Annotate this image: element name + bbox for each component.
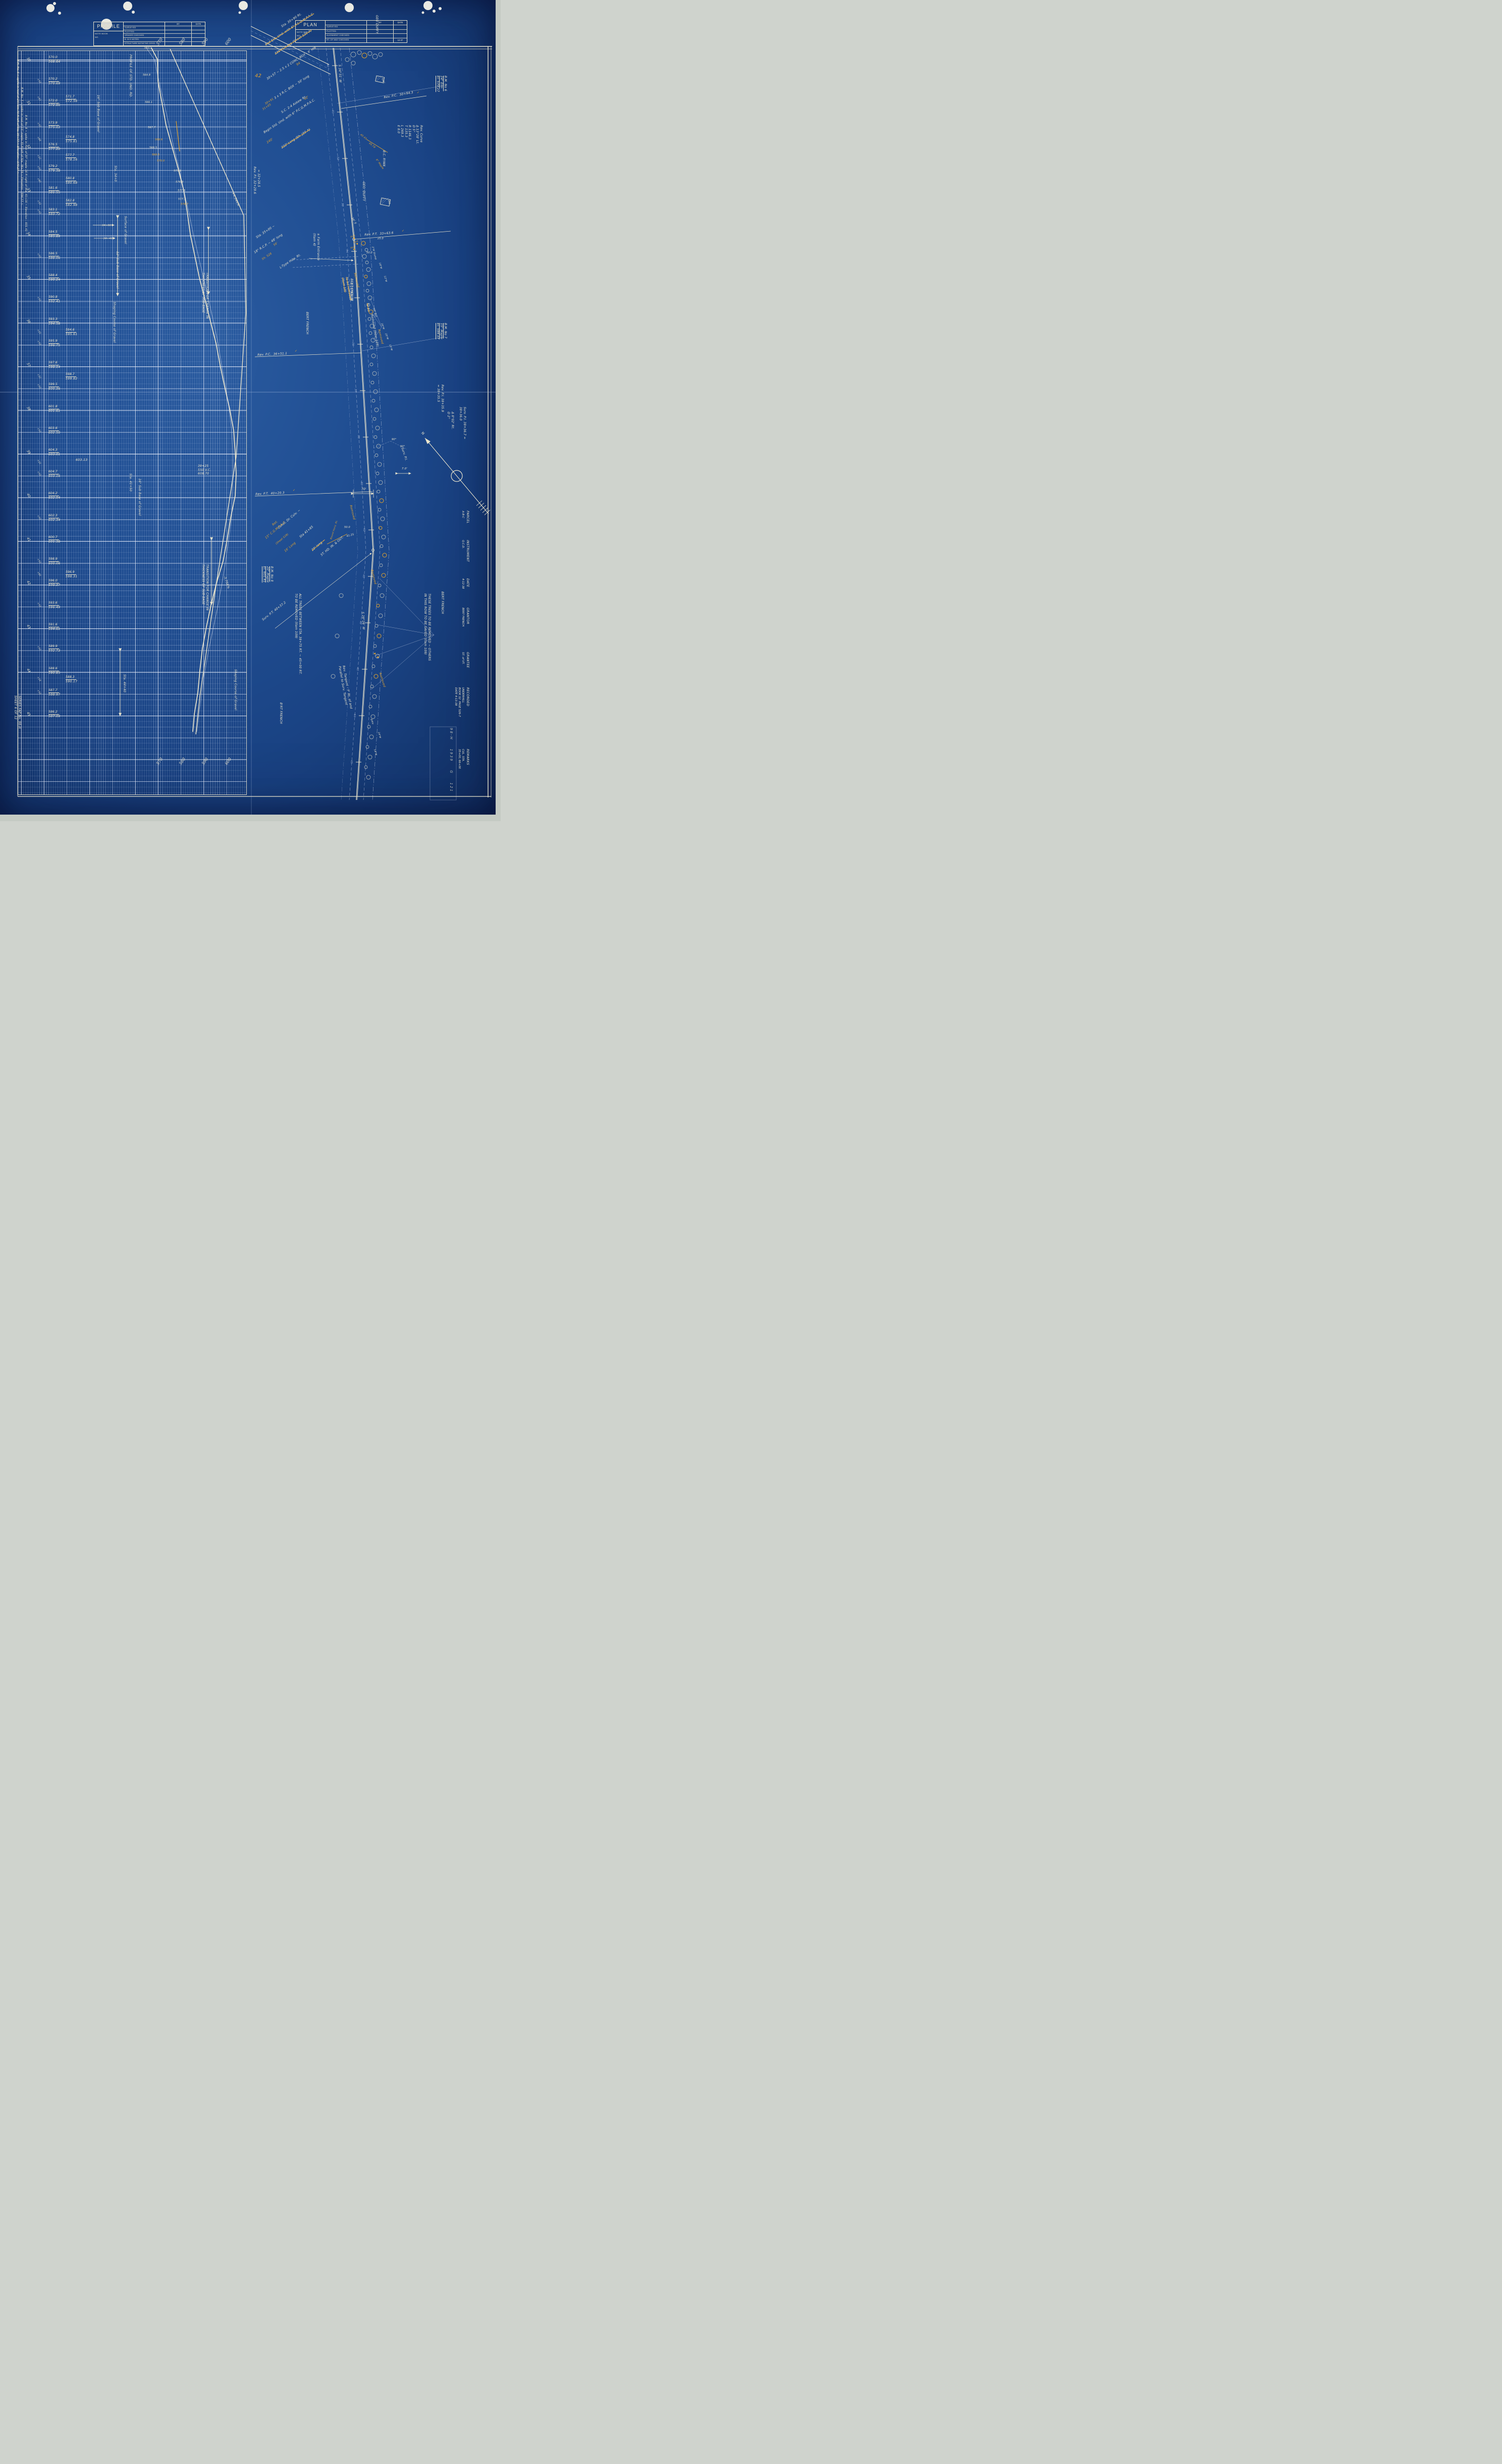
- elevation-pair: 589.9592.73: [48, 645, 60, 653]
- ground-elevation: 600.36: [48, 387, 60, 391]
- plan-station-label: 45: [350, 760, 353, 764]
- grade-elevation: 589.9: [48, 645, 59, 649]
- tree-icon: [364, 275, 367, 278]
- leader-surv-pt: [275, 553, 371, 628]
- annotation: Removed: [349, 505, 356, 520]
- ground-elevation: 598.37: [48, 583, 60, 587]
- tree-icon: [376, 654, 380, 658]
- plan-station-label: 31: [331, 110, 334, 114]
- ground-elevation: 568.64: [48, 60, 60, 64]
- punch-hole: [423, 1, 433, 10]
- tree-icon: [365, 261, 368, 264]
- annotation: 577.7: [178, 198, 186, 201]
- annotation: 7.0': [402, 467, 407, 471]
- parcel-column: GRANTEEST. of VT.: [454, 652, 469, 685]
- annotation: 222' Long (Sh. J30-A): [281, 128, 311, 149]
- annotation: ✓: [402, 229, 404, 233]
- by-cell: [366, 38, 393, 42]
- tree-icon: [367, 725, 370, 728]
- annotation: gate: [370, 719, 374, 725]
- tree-icon: [370, 363, 373, 366]
- tree-icon: [371, 715, 375, 719]
- grade-elevation: 571.7: [66, 95, 76, 99]
- annotation: Shaping Course of Gravel: [113, 302, 117, 343]
- tree-icon: [376, 472, 379, 475]
- by-cell: [165, 30, 191, 34]
- ground-elevation: 602.94: [48, 496, 60, 500]
- tree-icon: [380, 499, 384, 503]
- hub-marker: [377, 656, 379, 658]
- elevation-pair: 603.6602.50: [48, 426, 60, 435]
- tree-icon: [374, 408, 379, 412]
- grade-elevation: 602.3: [48, 514, 59, 518]
- grade-elevation: 598.7: [66, 372, 76, 377]
- tree-icon: [381, 517, 385, 521]
- tree-icon: [380, 594, 384, 598]
- grade-elevation: 577.7: [66, 153, 76, 158]
- annotation: Hub: [353, 240, 359, 245]
- elevation-pair: 579.2579.38: [48, 165, 60, 173]
- punch-hole: [46, 4, 55, 12]
- elevation-pair: 588.4590.24: [48, 274, 60, 282]
- annotation: Sh. 528: [261, 252, 273, 261]
- annotation: SERIES FAP No. 98-H SHEET 6 OF 12: [14, 695, 21, 729]
- titleblock-row: SURVEYED: [326, 25, 407, 30]
- date-cell: [393, 25, 407, 29]
- elevation-pair: 580.8580.68: [66, 177, 77, 185]
- annotation: 30+57 ~ 2.5 x 2 CONC. BOX · 6' HW: [266, 46, 317, 81]
- grade-elevation: 584.5: [48, 230, 59, 235]
- annotation: 18"M: [373, 749, 377, 756]
- tree-icon: [378, 462, 382, 466]
- by-cell: [165, 26, 191, 30]
- ground-elevation: 588.97: [48, 693, 60, 697]
- grade-elevation: 591.6: [48, 623, 59, 627]
- grade-elevation: 593.6: [48, 601, 59, 606]
- north-arrow-head: [425, 438, 431, 444]
- grade-elevation: 600.7: [48, 535, 59, 540]
- annotation: 16" Sub Base of Gravel: [138, 478, 142, 516]
- annotation: B.M. No 8 20" Maple El. 601.41: [262, 566, 274, 582]
- annotation: BERT FRENCH: [305, 312, 309, 334]
- grade-elevation: 570.0: [48, 56, 59, 60]
- by-header: BY: [165, 22, 191, 26]
- annotation: ALL TREES BETWEEN STA. 38+75 RT. ~ 45+00…: [294, 594, 302, 674]
- ground-elevation: 592.73: [48, 649, 60, 653]
- tree-icon: [362, 254, 366, 258]
- ground-elevation: 590.17: [66, 680, 77, 684]
- annotation: ✓: [293, 489, 295, 493]
- punch-hole: [439, 7, 442, 10]
- date-cell: 12-37: [393, 38, 407, 42]
- annotation: To Be: [365, 303, 370, 312]
- annotation: B.M. No. 7 ~ spike in root of 15" maple …: [20, 87, 23, 205]
- elevation-pair: 572.0572.86: [48, 99, 60, 107]
- elevation-pair: 598.9600.06: [48, 557, 60, 565]
- ground-elevation: 588.06: [48, 256, 60, 260]
- ground-elevation: 598.31: [66, 575, 77, 579]
- grade-elevation: 570.2: [48, 77, 59, 82]
- grade-elevation: 586.2: [48, 710, 59, 715]
- annotation: Surv. P.I.: [400, 447, 408, 461]
- parcel-value: BERT FRENCH: [461, 608, 464, 650]
- titleblock-row: PLOTTED: [326, 30, 407, 34]
- ground-elevation: 601.38: [48, 540, 60, 544]
- annotation: 49.78: [368, 142, 376, 149]
- elevation-pair: 595.9596.75: [48, 339, 60, 347]
- annotation: ✓: [295, 349, 297, 353]
- annotation: Sta 41+85: [299, 525, 314, 539]
- annotation: 12"M: [383, 276, 387, 282]
- tree-icon: [331, 674, 335, 678]
- ground-elevation: 602.50: [48, 431, 60, 435]
- ground-elevation: 585.89: [48, 235, 60, 239]
- annotation: 25"M: [384, 333, 389, 340]
- grade-elevation: 593.3: [48, 317, 59, 322]
- tree-icon: [372, 694, 377, 699]
- annotation: Hub: [350, 246, 356, 250]
- date-header: DATE: [191, 22, 205, 26]
- notebook-no: NO.: [95, 36, 99, 38]
- ground-elevation: 580.68: [66, 181, 77, 185]
- by-cell: [165, 42, 191, 45]
- annotation: Surface of Gravel: [124, 216, 128, 244]
- date-cell: [393, 34, 407, 38]
- annotation: THESE TREES TO BE REMOVED ~ OTHERS IN TH…: [423, 594, 431, 661]
- farm-entrance: [293, 256, 359, 260]
- elevation-pair: 596.9598.31: [66, 570, 77, 578]
- annotation: 24" E: [351, 217, 357, 225]
- tree-icon: [364, 766, 367, 769]
- grade-elevation: 598.9: [48, 557, 59, 562]
- ground-elevation: 602.34: [48, 518, 60, 522]
- plan-station-label: 39: [360, 481, 363, 485]
- tree-icon: [366, 267, 370, 272]
- parcel-column: REMARKSCUL. STA. 35+00, 66+00: [454, 749, 469, 787]
- titleblock-row: B. M.S NOTED: [124, 38, 205, 42]
- ground-elevation: 594.58: [48, 322, 60, 326]
- ground-elevation: 572.56: [66, 99, 77, 103]
- elevation-pair: 604.7603.16: [48, 470, 60, 478]
- annotation: TRANSITION FOR CHANGE IN THICKNESS OF SU…: [201, 564, 209, 611]
- ground-elevation: 596.49: [48, 606, 60, 610]
- date-header: DATE: [393, 21, 407, 25]
- annotation: S 28°26' W: [361, 612, 365, 630]
- annotation: 50.0: [366, 251, 372, 254]
- elevation-pair: 576.5577.20: [48, 143, 60, 151]
- annotation: 567.7: [148, 126, 155, 129]
- annotation: N: [420, 431, 425, 436]
- annotation: 34+00: [102, 224, 111, 227]
- grade-elevation: 586.5: [48, 252, 59, 256]
- farm-entrance: [293, 264, 360, 267]
- elevation-pair: 598.7599.82: [66, 372, 77, 381]
- elevation-pair: 573.9575.03: [48, 121, 60, 129]
- elevation-pair: 571.7572.56: [66, 95, 77, 103]
- house-building-hatch: [382, 198, 384, 200]
- grade-elevation: 597.6: [48, 361, 59, 365]
- ground-elevation: 601.61: [48, 409, 60, 413]
- by-header: BY: [366, 21, 393, 25]
- tree-icon: [366, 289, 369, 292]
- grade-elevation: 576.5: [48, 143, 59, 147]
- tree-icon: [335, 634, 339, 638]
- grade-elevation: 574.8: [66, 135, 76, 140]
- annotation: 25.0: [378, 237, 384, 240]
- date-cell: [191, 26, 205, 30]
- annotation: 569.6: [155, 138, 163, 141]
- annotation: 240': [266, 137, 274, 144]
- annotation: Removed: [378, 672, 386, 688]
- annotation: 18"M: [378, 262, 382, 269]
- annotation: ✓: [417, 91, 419, 95]
- tree-icon: [380, 545, 383, 548]
- elevation-pair: 591.6594.61: [48, 623, 60, 631]
- annotation: B.C. RYAN: [382, 150, 386, 167]
- annotation: 90°: [392, 438, 396, 441]
- titleblock-field: ALIGNMENT CHECKED: [326, 34, 366, 38]
- plan-station-label: 33: [341, 203, 344, 206]
- ground-elevation: 579.38: [48, 169, 60, 173]
- tree-icon: [377, 444, 381, 448]
- tree-icon: [372, 665, 375, 668]
- annotation: 40.45: [359, 133, 367, 141]
- grade-elevation: 596.0: [48, 579, 59, 583]
- blueprint-sheet: PROFILE NOTE BOOK NO. BYDATESURVEYEDPLOT…: [0, 0, 496, 815]
- titleblock-row: ALIGNMENT CHECKED: [326, 34, 407, 38]
- parcel-value: UNDERHILL BOOK 32 PAGE 526-7 DATE 4-13-3…: [454, 687, 464, 747]
- annotation: B.M. No 7 15" Maple El. 594.17: [436, 323, 448, 339]
- annotation: (Sheet S28): [275, 533, 289, 546]
- parcel-header: REMARKS: [466, 749, 469, 787]
- grade-elevation: 599.5: [48, 383, 59, 387]
- road-centerline-2: [334, 48, 374, 800]
- tree-icon: [369, 735, 373, 739]
- tree-icon: [370, 685, 373, 688]
- annotation: 566.1: [145, 101, 152, 104]
- ground-elevation: 596.75: [48, 344, 60, 348]
- elevation-scale-label: 600: [224, 37, 232, 46]
- annotation: 16" Sub Base of Gravel: [96, 95, 100, 132]
- parcel-header: GRANTOR: [466, 608, 469, 650]
- spacer: [326, 21, 366, 25]
- grade-elevation: 579.2: [48, 165, 59, 169]
- ground-elevation: 603.13: [76, 458, 87, 462]
- profile-title-block: PROFILE NOTE BOOK NO. BYDATESURVEYEDPLOT…: [93, 22, 205, 46]
- parcel-column: DATE4-12-38: [454, 578, 469, 606]
- profile-grid: [18, 50, 247, 795]
- punch-hole: [53, 2, 56, 5]
- by-cell: [165, 34, 191, 37]
- tree-icon: [351, 61, 355, 65]
- elevation-pair: 577.7578.16: [66, 153, 77, 162]
- plan-station-label: 38: [357, 435, 360, 439]
- ground-elevation: 570.69: [48, 82, 60, 86]
- tree-icon: [368, 296, 372, 300]
- annotation: B.M. No. 6 ~ spike in root of 24" elm 40…: [16, 60, 19, 174]
- ground-elevation: 575.81: [66, 140, 77, 144]
- annotation: L-Type Hdw. Rt.: [279, 253, 302, 270]
- annotation: B.M. No. 8 ~ spike in root of 20" maple …: [24, 115, 27, 235]
- punch-hole: [345, 3, 354, 12]
- ground-elevation: 592.41: [48, 300, 60, 304]
- parcel-header: PARCEL: [466, 511, 469, 538]
- elevation-pair: 574.8575.81: [66, 135, 77, 143]
- annotation: 15"M: [388, 344, 393, 351]
- tree-icon: [375, 454, 378, 457]
- punch-hole: [58, 12, 61, 15]
- titleblock-row: STRUCTURE NOTAT'NS CH'KD.: [124, 42, 205, 45]
- ground-elevation: 583.72: [48, 212, 60, 217]
- annotation: Rev. P.I. 38+35.9 = 38+35.5: [437, 385, 444, 412]
- grade-elevation: 596.9: [66, 570, 76, 575]
- annotation: Removed: [370, 569, 377, 585]
- punch-hole: [132, 11, 135, 14]
- titleblock-header-row: BYDATE: [124, 22, 205, 26]
- punch-hole: [123, 2, 132, 11]
- grade-elevation: 603.6: [48, 426, 59, 431]
- plan-station-label: 43: [356, 667, 359, 671]
- grade-elevation: 573.9: [48, 121, 59, 126]
- tree-icon: [380, 564, 383, 567]
- grade-elevation: 604.2: [48, 492, 59, 496]
- annotation: 577.6: [178, 189, 185, 192]
- ground-elevation: 603.16: [48, 474, 60, 478]
- tree-icon: [377, 604, 380, 607]
- elevation-pair: 570.2570.69: [48, 77, 60, 85]
- date-cell: [191, 34, 205, 37]
- elevation-pair: 602.3602.34: [48, 514, 60, 522]
- parcel-value: 4-12-38: [461, 578, 464, 606]
- grade-elevation: 583.1: [48, 208, 59, 212]
- annotation: 50.0: [344, 526, 350, 529]
- north-arrow-feather: [485, 510, 490, 515]
- elevation-pair: 593.3594.58: [48, 317, 60, 326]
- tree-icon: [351, 52, 356, 57]
- annotation: Hub: [350, 235, 356, 239]
- tree-icon: [372, 371, 377, 376]
- annotation: 34+40: [103, 237, 113, 240]
- tree-icon: [379, 480, 383, 485]
- elevation-pair: 588.6590.85: [48, 667, 60, 675]
- tree-icon: [373, 417, 376, 420]
- parcel-value: A-B-C: [461, 511, 464, 538]
- parcel-value: Q.C.D.: [461, 540, 464, 576]
- annotation: Shaping Course of Gravel: [234, 669, 238, 710]
- parcel-header: INSTRUMENT: [466, 540, 469, 576]
- grade-elevation: 588.6: [48, 667, 59, 671]
- parcel-column: RECORDEDUNDERHILL BOOK 32 PAGE 526-7 DAT…: [454, 687, 469, 747]
- tree-icon: [371, 381, 374, 384]
- ground-elevation: 572.86: [48, 103, 60, 108]
- elevation-pair: 582.8582.98: [66, 199, 77, 207]
- titleblock-field: PLOTTED: [124, 30, 165, 34]
- parcel-header: DATE: [466, 578, 469, 606]
- annotation: 90°: [400, 445, 405, 448]
- annotation: 42: [255, 73, 261, 80]
- tree-icon: [376, 426, 380, 430]
- profile-title: PROFILE: [94, 22, 123, 31]
- tree-icon: [379, 614, 383, 618]
- annotation: Sta. 41+50: [129, 473, 133, 492]
- tree-icon: [369, 332, 372, 335]
- annotation: Removed: [353, 273, 360, 288]
- annotation: = 32+28.5: [257, 170, 261, 187]
- annotation: S 34°31' W: [338, 65, 342, 83]
- titleblock-field: RT. OF WAY CHECKED: [326, 38, 366, 42]
- annotation: Ho.: [387, 200, 392, 206]
- annotation: Gar.: [381, 78, 386, 85]
- elevation-pair: 584.5585.89: [48, 230, 60, 238]
- hub-marker: [373, 653, 376, 655]
- annotation: Rev. Curve Δ 13°28' Lt. D 5° R 1146.3 T …: [397, 125, 423, 144]
- elevation-pair: 586.2587.09: [48, 710, 60, 718]
- grade-elevation: 590.8: [48, 295, 59, 300]
- annotation: 20' long ~: [311, 539, 326, 552]
- tree-icon: [361, 241, 365, 245]
- annotation: GEO DUFFY: [375, 15, 379, 33]
- annotation: 578.7: [181, 203, 188, 206]
- tree-icon: [366, 775, 370, 779]
- pi-point: [353, 238, 355, 241]
- ground-elevation: 581.55: [48, 191, 60, 195]
- grade-elevation: 594.6: [66, 328, 76, 333]
- annotation: Sta. 35+00 ~: [255, 224, 276, 239]
- annotation: 70': [361, 488, 366, 492]
- annotation: 568.5: [149, 146, 157, 149]
- titleblock-row: SURVEYED: [124, 26, 205, 30]
- elevation-pair: 597.6598.14: [48, 361, 60, 369]
- parcel-column: PARCELA-B-C: [454, 511, 469, 538]
- punch-hole: [239, 12, 241, 14]
- parcel-header: GRANTEE: [466, 652, 469, 685]
- elevation-pair: 588.3590.17: [66, 675, 77, 683]
- annotation: TRANSITION FOR CHANGE IN THICKNESS OF SU…: [201, 273, 209, 319]
- tree-icon: [369, 705, 372, 708]
- annotation: Rev. P.I. 32+29.6: [253, 167, 257, 194]
- ground-elevation: 603.01: [48, 453, 60, 457]
- ground-elevation: 578.16: [66, 158, 77, 162]
- annotation: GEO. DUFFY: [362, 182, 366, 201]
- elevation-pair: 596.0598.37: [48, 579, 60, 587]
- ground-elevation: 600.06: [48, 562, 60, 566]
- grade-elevation: 604.3: [48, 448, 59, 453]
- tree-icon: [375, 624, 378, 627]
- elevation-pair: 594.6595.61: [66, 328, 77, 336]
- ground-elevation: 590.24: [48, 278, 60, 282]
- tree-icon: [382, 573, 386, 577]
- plan-station-label: 32: [336, 156, 339, 160]
- tree-icon: [374, 674, 378, 678]
- annotation: Rev. P.T. 33+63.6: [364, 231, 394, 237]
- ground-elevation: 598.14: [48, 365, 60, 369]
- titleblock-field: SURVEYED: [124, 26, 165, 30]
- tree-icon: [371, 354, 376, 358]
- by-cell: [366, 25, 393, 29]
- ground-elevation: 594.61: [48, 627, 60, 631]
- elevation-pair: 590.8592.41: [48, 295, 60, 303]
- annotation: 563.5: [144, 46, 152, 49]
- pi-point: [372, 549, 374, 552]
- annotation: 570.0: [157, 159, 165, 163]
- ground-elevation: 587.09: [48, 715, 60, 719]
- garage-building-hatch: [377, 76, 379, 77]
- tree-icon: [372, 399, 375, 402]
- annotation: 12" Sub Base of Gravel: [116, 251, 120, 289]
- elevation-pair: 593.6596.49: [48, 601, 60, 609]
- grade-elevation: 588.3: [66, 675, 76, 680]
- annotation: 24"M: [377, 732, 381, 738]
